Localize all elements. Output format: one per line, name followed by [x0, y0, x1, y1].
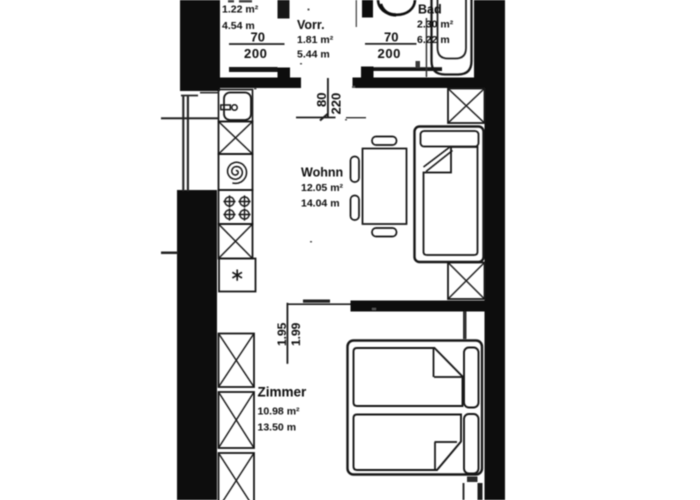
svg-text:1.22 m²: 1.22 m²: [222, 4, 259, 16]
svg-text:200: 200: [244, 46, 268, 61]
svg-text:14.04 m: 14.04 m: [301, 198, 340, 210]
svg-text:6.22 m: 6.22 m: [417, 34, 450, 46]
svg-text:220: 220: [329, 93, 344, 115]
svg-text:Bad: Bad: [418, 3, 442, 17]
svg-text:1.95: 1.95: [275, 322, 289, 346]
svg-text:70: 70: [384, 30, 398, 45]
svg-text:12.05 m²: 12.05 m²: [301, 182, 344, 194]
svg-text:13.50 m: 13.50 m: [258, 422, 297, 434]
svg-text:Zimmer: Zimmer: [258, 385, 308, 400]
svg-text:10.98 m²: 10.98 m²: [258, 406, 301, 418]
svg-text:1.99: 1.99: [289, 322, 303, 346]
svg-text:5.44 m: 5.44 m: [297, 49, 330, 61]
svg-text:Vorr.: Vorr.: [297, 18, 325, 32]
svg-text:Wohnn: Wohnn: [301, 166, 343, 180]
svg-text:80: 80: [314, 93, 329, 107]
svg-text:70: 70: [251, 30, 265, 45]
svg-text:2.30 m²: 2.30 m²: [417, 19, 454, 31]
svg-text:1.81 m²: 1.81 m²: [297, 34, 334, 46]
svg-text:200: 200: [378, 46, 402, 61]
